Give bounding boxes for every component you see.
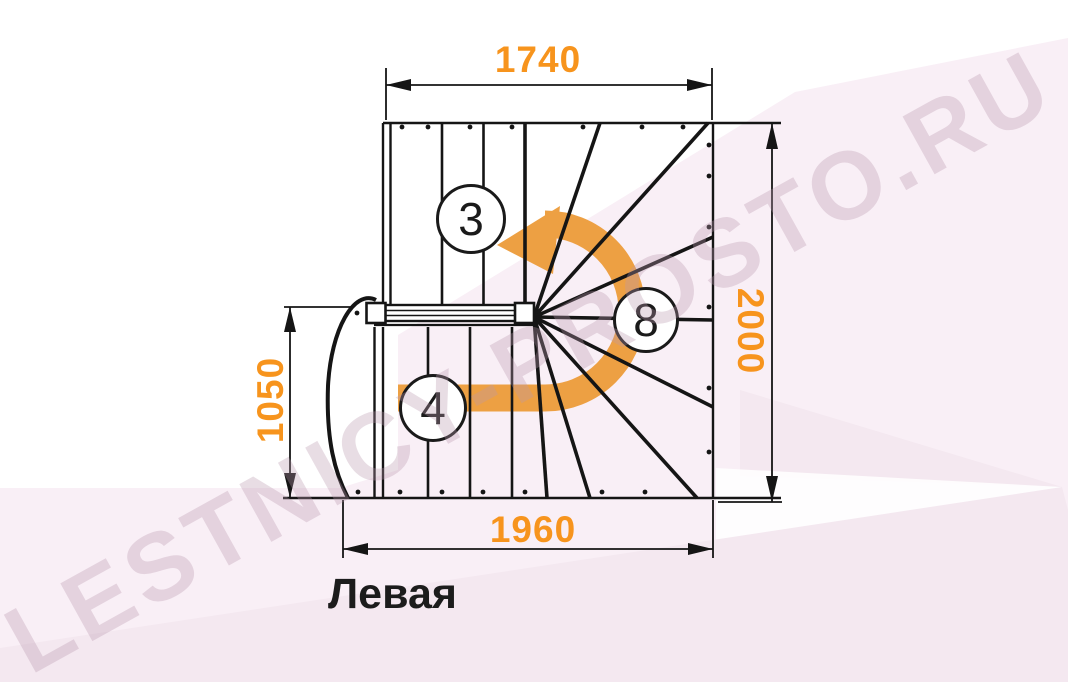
upper-flight-step-count: 3 [458, 192, 484, 246]
orientation-caption: Левая [328, 570, 588, 619]
dimension-bottom-width: 1960 [443, 508, 623, 552]
stair-plan-drawing: 3 4 8 1740 2000 1050 1960 Левая LESTNICY… [0, 0, 1068, 682]
upper-flight-step-count-badge: 3 [436, 184, 506, 254]
dimension-top-width: 1740 [448, 38, 628, 82]
newel-post-left [367, 303, 386, 323]
